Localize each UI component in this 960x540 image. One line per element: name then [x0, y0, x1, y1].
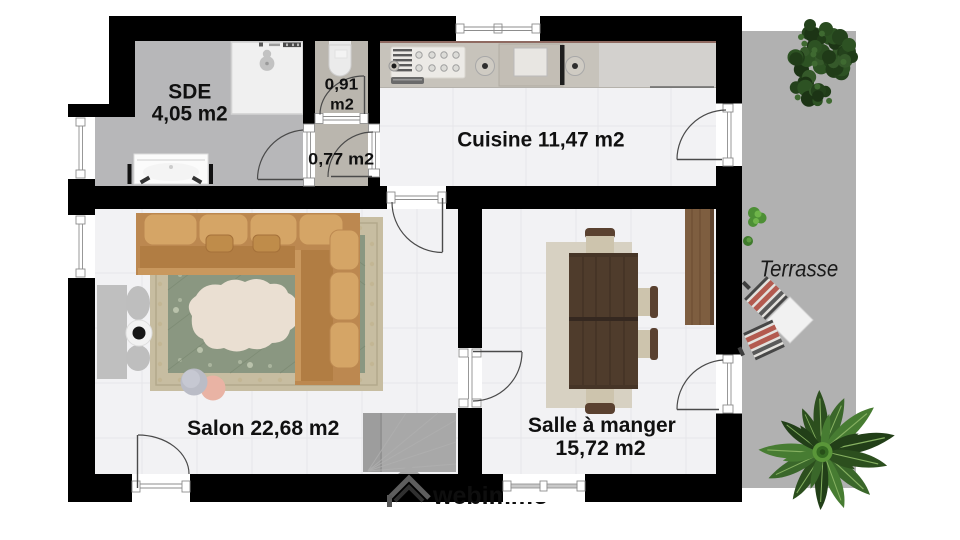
- svg-text:0,91: 0,91: [325, 77, 359, 94]
- svg-text:15,72 m2: 15,72 m2: [555, 437, 645, 460]
- svg-text:m2: m2: [330, 96, 354, 113]
- svg-text:Cuisine 11,47 m2: Cuisine 11,47 m2: [457, 127, 624, 151]
- svg-text:SDE: SDE: [168, 79, 211, 103]
- svg-text:0,77 m2: 0,77 m2: [308, 150, 374, 169]
- svg-text:Terrasse: Terrasse: [760, 256, 839, 282]
- svg-text:Salle à manger: Salle à manger: [528, 414, 676, 437]
- svg-text:4,05 m2: 4,05 m2: [152, 102, 228, 126]
- svg-text:Salon 22,68 m2: Salon 22,68 m2: [187, 416, 339, 440]
